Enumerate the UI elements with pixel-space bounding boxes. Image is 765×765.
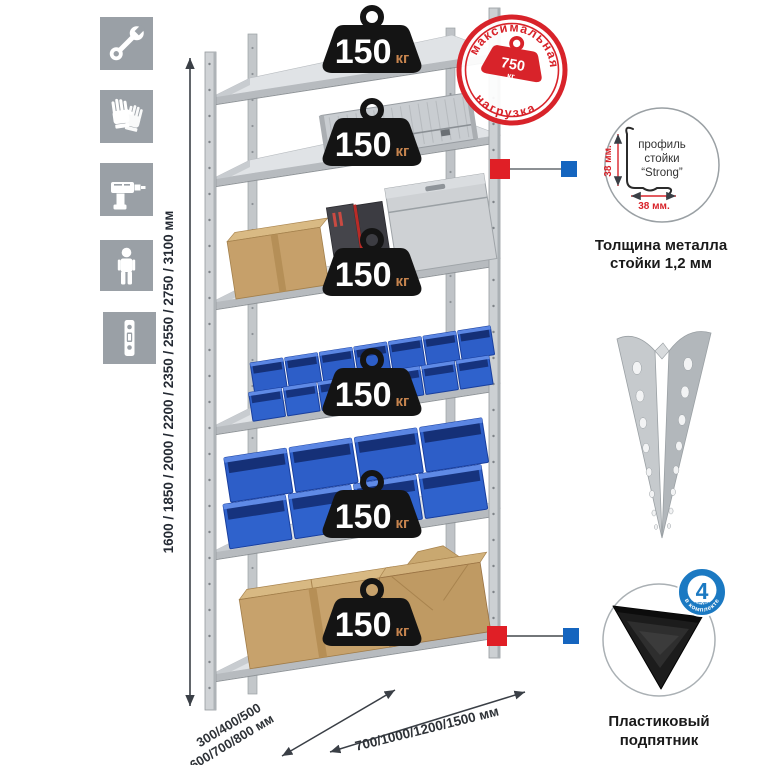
profile-label-2: стойки xyxy=(644,153,679,165)
profile-dim-horizontal: 38 мм. xyxy=(638,201,670,212)
width-dimension: 700/1000/1200/1500 мм xyxy=(330,692,525,754)
shelving-product-infographic: 1600 / 1850 / 2000 / 2200 / 2350 / 2550 … xyxy=(0,0,765,765)
connector-bottom-red-square xyxy=(487,626,507,646)
profile-callout-circle: 38 мм. 38 мм. профиль стойки “Strong” xyxy=(603,108,719,222)
product-infographic-svg: 1600 / 1850 / 2000 / 2200 / 2350 / 2550 … xyxy=(0,0,765,765)
width-dimension-label: 700/1000/1200/1500 мм xyxy=(353,704,500,754)
metal-post-image xyxy=(617,331,711,538)
load-weight-1: 150кг xyxy=(323,8,422,73)
wrench-icon xyxy=(100,17,153,70)
connector-top xyxy=(490,159,577,179)
badge-4-pieces: 4 штуки в комплекте xyxy=(678,568,726,616)
profile-caption-line1: Толщина металла xyxy=(595,237,728,254)
drill-icon xyxy=(100,163,153,216)
connector-bottom xyxy=(487,626,579,646)
profile-label-3: “Strong” xyxy=(641,167,683,179)
person-icon xyxy=(100,240,153,291)
profile-strip-icon xyxy=(103,312,156,364)
profile-dim-vertical: 38 мм. xyxy=(603,145,614,177)
shelving-unit: 150кг 150кг 150кг 150кг 150кг 150кг xyxy=(205,8,500,710)
gloves-icon xyxy=(100,90,153,143)
profile-caption-line2: стойки 1,2 мм xyxy=(610,255,712,272)
connector-bottom-blue-square xyxy=(563,628,579,644)
badge-word: штуки xyxy=(695,601,709,606)
profile-label-1: профиль xyxy=(638,139,686,151)
foot-caption-line2: подпятник xyxy=(620,732,699,749)
height-dimension-label: 1600 / 1850 / 2000 / 2200 / 2350 / 2550 … xyxy=(161,211,176,554)
foot-caption-line1: Пластиковый xyxy=(608,713,709,730)
connector-top-red-square xyxy=(490,159,510,179)
sidebar xyxy=(100,17,156,364)
connector-top-blue-square xyxy=(561,161,577,177)
height-dimension: 1600 / 1850 / 2000 / 2200 / 2350 / 2550 … xyxy=(161,58,190,706)
foot-callout-circle: 4 штуки в комплекте xyxy=(603,568,726,696)
